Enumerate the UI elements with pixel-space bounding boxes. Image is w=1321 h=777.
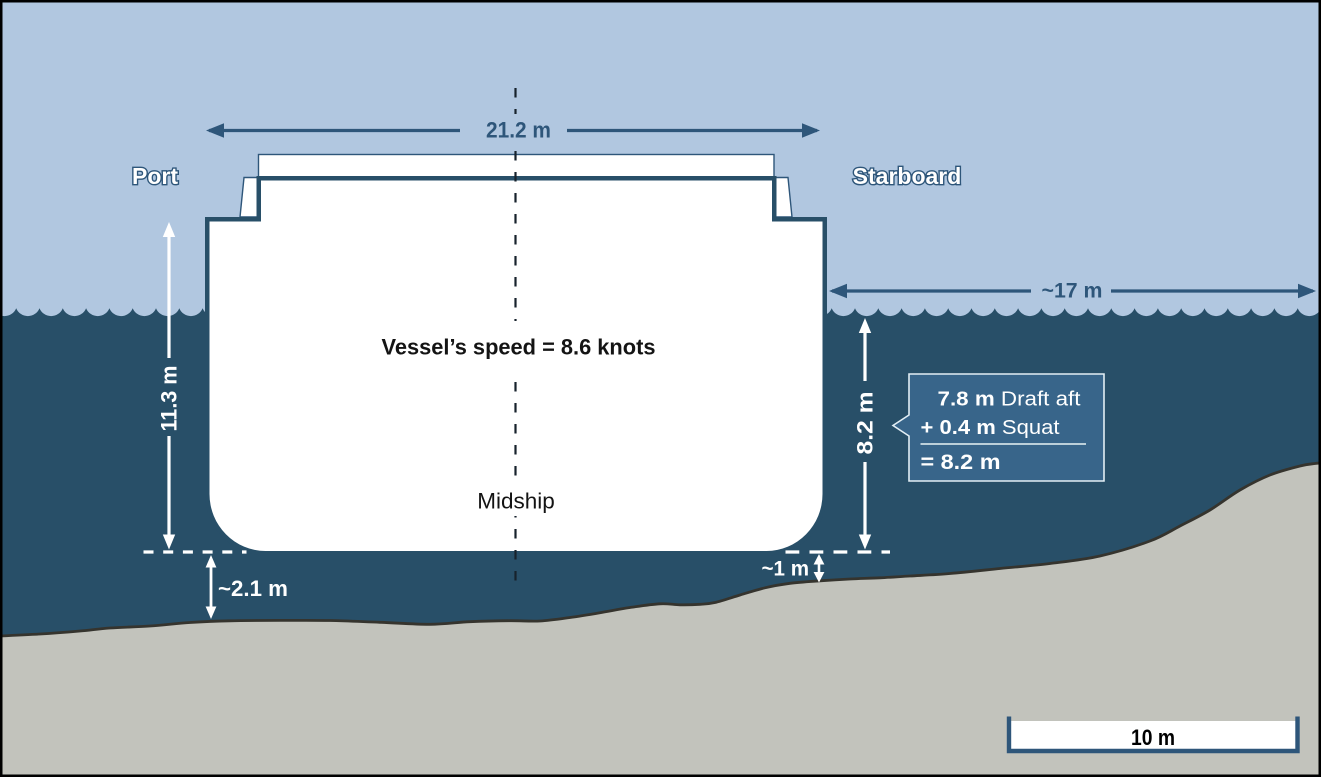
svg-text:+ 0.4 m Squat: + 0.4 m Squat (921, 416, 1060, 439)
svg-text:7.8 m Draft aft: 7.8 m Draft aft (938, 388, 1081, 411)
svg-text:~17 m: ~17 m (1042, 280, 1103, 303)
svg-text:Starboard: Starboard (853, 163, 962, 189)
svg-text:~1 m: ~1 m (762, 557, 810, 581)
svg-text:~2.1 m: ~2.1 m (218, 576, 288, 601)
svg-text:Port: Port (132, 163, 178, 189)
svg-text:21.2 m: 21.2 m (486, 118, 551, 143)
svg-text:Midship: Midship (477, 489, 555, 514)
svg-text:10 m: 10 m (1131, 725, 1175, 750)
svg-text:= 8.2 m: = 8.2 m (921, 450, 1001, 474)
svg-text:11.3 m: 11.3 m (157, 366, 182, 432)
svg-text:Vessel’s speed = 8.6 knots: Vessel’s speed = 8.6 knots (382, 335, 656, 360)
svg-text:8.2 m: 8.2 m (853, 392, 878, 455)
